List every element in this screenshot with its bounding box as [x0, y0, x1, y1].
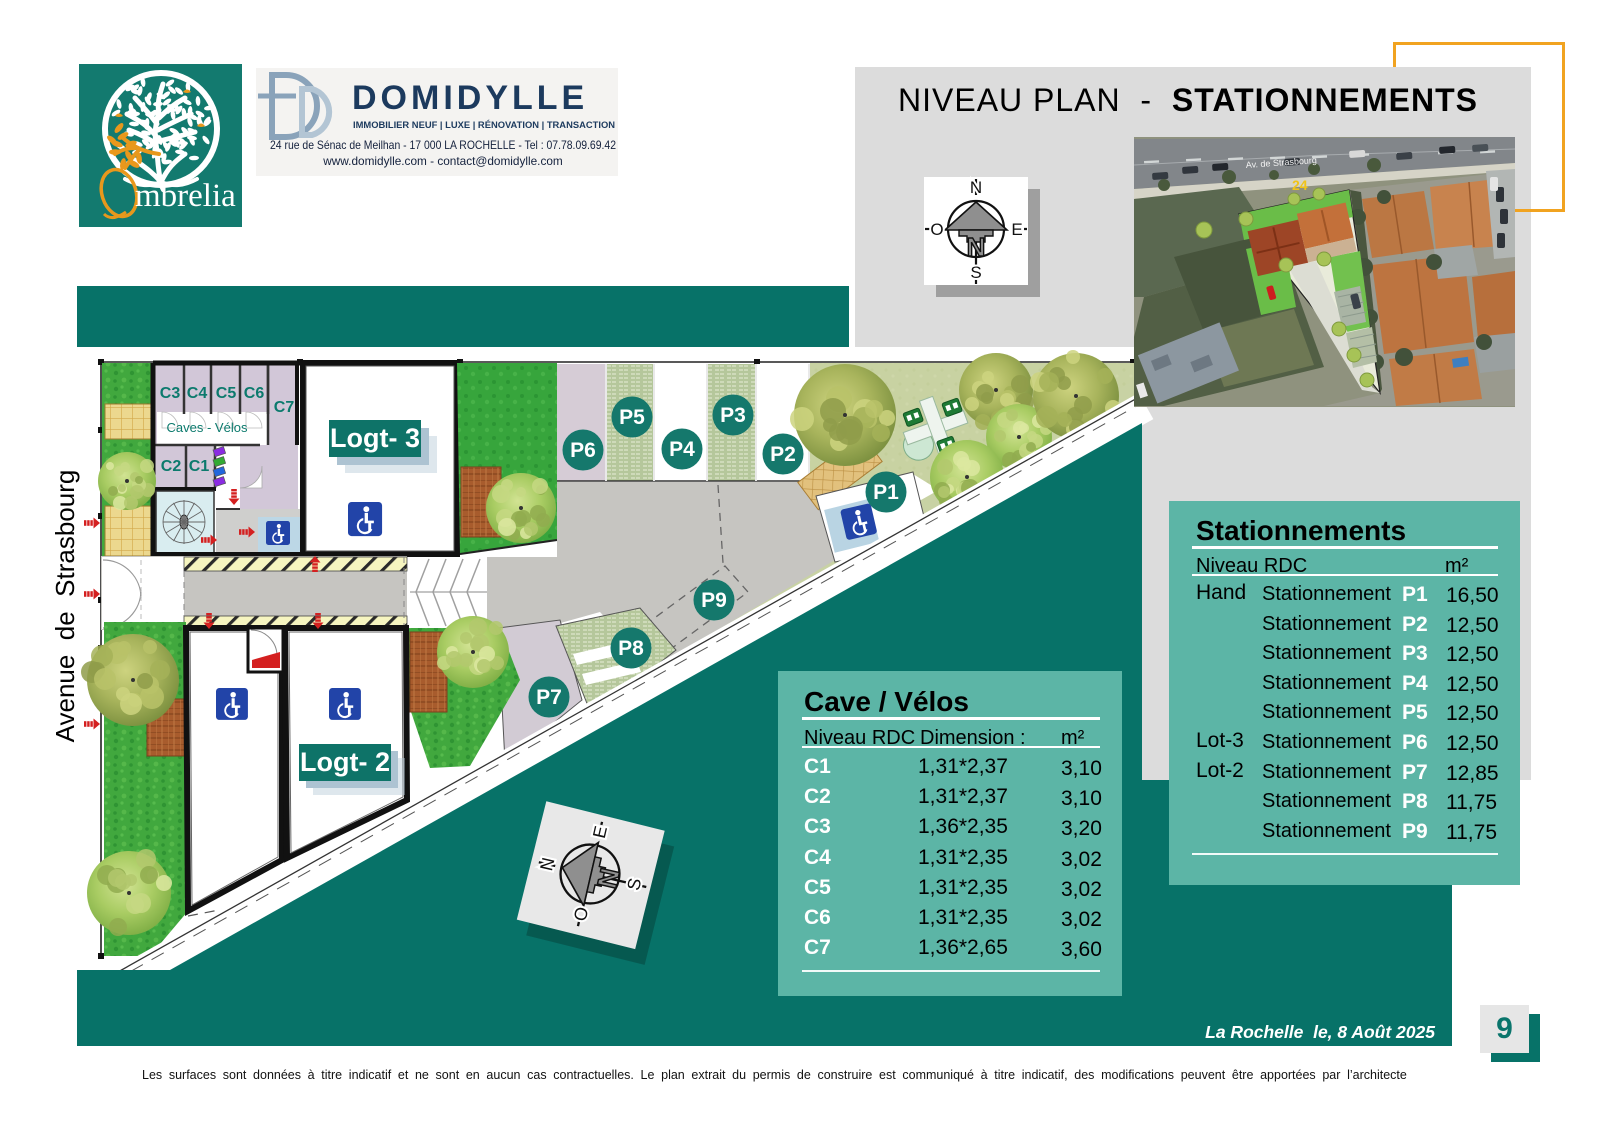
svg-text:C1: C1 [189, 458, 210, 475]
svg-text:www.domidylle.com - contact@do: www.domidylle.com - contact@domidylle.co… [322, 154, 563, 168]
svg-text:P3: P3 [720, 404, 746, 427]
svg-text:DOMIDYLLE: DOMIDYLLE [352, 79, 588, 117]
svg-text:P8: P8 [618, 637, 644, 660]
svg-text:24 rue de Sénac de Meilhan - 1: 24 rue de Sénac de Meilhan - 17 000 LA R… [270, 138, 616, 152]
svg-text:C6: C6 [244, 385, 265, 402]
svg-text:P2: P2 [770, 443, 796, 466]
svg-text:IMMOBILIER NEUF | LUXE | RÉNOV: IMMOBILIER NEUF | LUXE | RÉNOVATION | TR… [353, 120, 615, 130]
svg-text:P6: P6 [570, 439, 596, 462]
svg-text:Caves - Vélos: Caves - Vélos [167, 420, 248, 435]
svg-text:24: 24 [1292, 177, 1308, 193]
svg-text:P9: P9 [701, 589, 727, 612]
svg-text:P4: P4 [669, 438, 695, 461]
svg-text:C5: C5 [216, 385, 237, 402]
svg-text:C2: C2 [161, 458, 182, 475]
svg-text:mbrelia: mbrelia [135, 178, 236, 214]
svg-text:P7: P7 [536, 686, 562, 709]
svg-text:Logt- 2: Logt- 2 [300, 747, 390, 777]
svg-text:P1: P1 [873, 481, 899, 504]
svg-text:C3: C3 [160, 385, 181, 402]
svg-text:P5: P5 [619, 406, 645, 429]
svg-text:C4: C4 [187, 385, 208, 402]
svg-text:Logt- 3: Logt- 3 [330, 423, 420, 453]
svg-text:C7: C7 [274, 399, 295, 416]
